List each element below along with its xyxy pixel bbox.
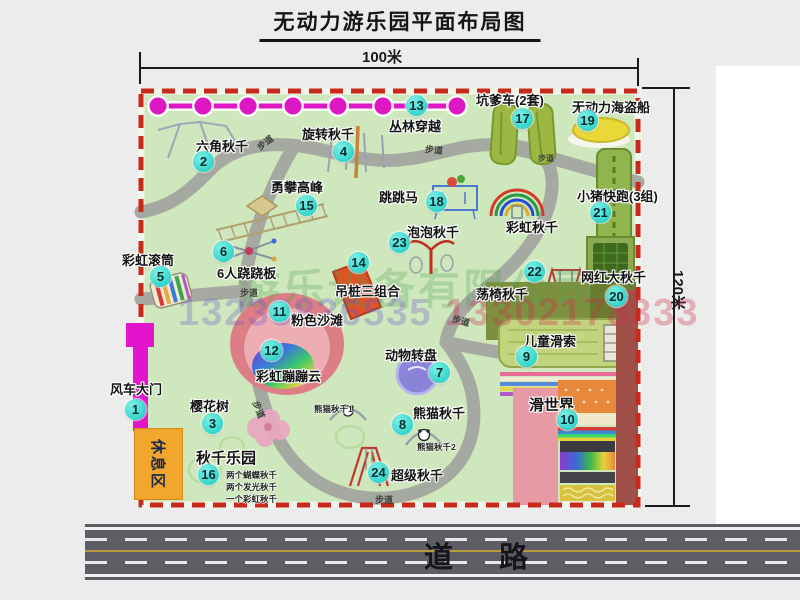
park-map-canvas bbox=[0, 0, 800, 600]
trail-label: 步道 bbox=[424, 142, 443, 157]
panda-swing-1-label: 熊猫秋千1 bbox=[314, 403, 353, 415]
road-label: 道路 bbox=[424, 534, 574, 576]
attraction-badge-20: 20 bbox=[606, 286, 627, 307]
attraction-label-23: 泡泡秋千 bbox=[407, 222, 459, 241]
attraction-badge-3: 3 bbox=[202, 413, 223, 434]
attraction-label-11: 粉色沙滩 bbox=[291, 310, 343, 329]
attraction-badge-8: 8 bbox=[392, 414, 413, 435]
swing-park-note-3: 一个彩虹秋千 bbox=[226, 493, 277, 505]
attraction-label-24: 超级秋千 bbox=[391, 465, 443, 484]
rest-area-label: 休息区 bbox=[148, 438, 169, 489]
attraction-label-22: 荡椅秋千 bbox=[476, 284, 528, 303]
attraction-label-12: 彩虹蹦蹦云 bbox=[256, 366, 321, 385]
trail-label: 步道 bbox=[240, 286, 258, 299]
attraction-badge-9: 9 bbox=[516, 346, 537, 367]
swing-park-note-2: 两个发光秋千 bbox=[226, 481, 277, 493]
trail-label: 步道 bbox=[538, 153, 554, 164]
attraction-badge-13: 13 bbox=[406, 95, 427, 116]
attraction-badge-18: 18 bbox=[426, 191, 447, 212]
attraction-badge-7: 7 bbox=[429, 362, 450, 383]
attraction-label-20: 网红大秋千 bbox=[581, 267, 646, 286]
attraction-badge-14: 14 bbox=[348, 252, 369, 273]
attraction-badge-16: 16 bbox=[198, 464, 219, 485]
park-layout-plan: 无动力游乐园平面布局图 100米 120米 游乐设备有限公司 132338365… bbox=[0, 0, 800, 600]
attraction-badge-10: 10 bbox=[557, 409, 578, 430]
attraction-badge-5: 5 bbox=[150, 266, 171, 287]
attraction-badge-23: 23 bbox=[389, 232, 410, 253]
trail-label: 步道 bbox=[375, 493, 393, 506]
attraction-label-21: 小猪快跑(3组) bbox=[577, 186, 658, 205]
attraction-label-14: 吊桩三组合 bbox=[335, 281, 400, 300]
attraction-badge-4: 4 bbox=[333, 141, 354, 162]
attraction-badge-6: 6 bbox=[213, 241, 234, 262]
swing-park-note-1: 两个蝴蝶秋千 bbox=[226, 469, 277, 481]
attraction-label-17: 坑爹车(2套) bbox=[476, 90, 544, 109]
attraction-badge-22: 22 bbox=[524, 261, 545, 282]
road-edge-line-top bbox=[85, 527, 800, 530]
attraction-badge-12: 12 bbox=[261, 340, 282, 361]
attraction-badge-19: 19 bbox=[577, 110, 598, 131]
attraction-label-3: 樱花树 bbox=[190, 396, 229, 415]
rainbow-swing-label: 彩虹秋千 bbox=[506, 217, 558, 236]
attraction-label-18: 跳跳马 bbox=[379, 187, 418, 206]
attraction-badge-15: 15 bbox=[296, 195, 317, 216]
attraction-badge-11: 11 bbox=[269, 301, 290, 322]
attraction-badge-2: 2 bbox=[193, 151, 214, 172]
attraction-label-5: 彩虹滚筒 bbox=[122, 250, 174, 269]
attraction-label-6: 6人跷跷板 bbox=[217, 263, 276, 282]
road: 道路 bbox=[85, 524, 800, 580]
attraction-label-7: 动物转盘 bbox=[385, 345, 437, 364]
attraction-badge-17: 17 bbox=[512, 108, 533, 129]
attraction-badge-24: 24 bbox=[368, 462, 389, 483]
attraction-label-13: 丛林穿越 bbox=[389, 116, 441, 135]
rest-area-box: 休息区 bbox=[134, 428, 183, 500]
attraction-badge-21: 21 bbox=[590, 202, 611, 223]
panda-swing-2-label: 熊猫秋千2 bbox=[417, 441, 456, 453]
attraction-label-1: 风车大门 bbox=[110, 379, 162, 398]
attraction-label-4: 旋转秋千 bbox=[302, 124, 354, 143]
attraction-label-8: 熊猫秋千 bbox=[413, 403, 465, 422]
attraction-badge-1: 1 bbox=[125, 399, 146, 420]
attraction-label-15: 勇攀高峰 bbox=[271, 177, 323, 196]
